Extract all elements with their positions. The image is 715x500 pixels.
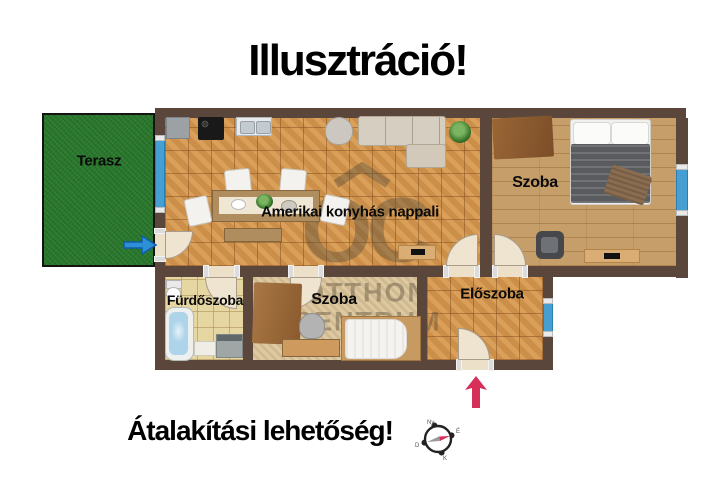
stove-cooktop bbox=[198, 117, 224, 140]
compass-east-letter: K bbox=[443, 456, 447, 462]
bathroom-door-opening bbox=[205, 266, 238, 277]
small-room-chair bbox=[299, 313, 325, 339]
bedroom-door-opening bbox=[494, 266, 526, 277]
tv bbox=[411, 249, 425, 255]
duvet bbox=[345, 319, 407, 359]
bathtub-water bbox=[169, 312, 188, 355]
floorplan-illustration: Illusztráció! Terasz OC OTTHON CENTRUM bbox=[0, 0, 715, 500]
wall-mid-seg3 bbox=[322, 266, 445, 277]
page-title: Illusztráció! bbox=[0, 36, 715, 86]
wall-hall-right-upper bbox=[543, 266, 553, 302]
sofa-chaise bbox=[406, 144, 446, 168]
bedroom-label: Szoba bbox=[512, 174, 558, 192]
wall-hall-right-lower bbox=[543, 333, 553, 370]
tv bbox=[604, 253, 620, 259]
small-room-label: Szoba bbox=[311, 291, 357, 309]
living-armchair bbox=[325, 117, 353, 145]
bedroom-window bbox=[676, 168, 688, 212]
hallway-window bbox=[543, 302, 553, 333]
caption-text: Átalakítási lehetőség! bbox=[110, 415, 410, 447]
dining-bench bbox=[224, 228, 282, 242]
bedroom-wardrobe bbox=[492, 115, 554, 159]
living-door-opening bbox=[445, 266, 478, 277]
compass-north-letter: É bbox=[456, 428, 460, 435]
living-room-label: Amerikai konyhás nappali bbox=[261, 204, 439, 221]
corner-sofa bbox=[358, 116, 446, 146]
wall-right-upper bbox=[676, 118, 688, 168]
entrance-door-opening bbox=[458, 360, 492, 370]
entrance-arrow-icon bbox=[462, 374, 490, 412]
pillow bbox=[611, 122, 649, 145]
double-bed bbox=[570, 119, 651, 205]
wall-living-bedroom bbox=[480, 108, 492, 277]
wall-bath-room bbox=[243, 277, 253, 360]
small-room-bench bbox=[282, 339, 340, 357]
compass-west-letter: Ny bbox=[427, 420, 434, 426]
single-bed bbox=[341, 316, 421, 361]
bedroom-tv-stand bbox=[584, 249, 640, 263]
wall-bottom-left bbox=[155, 360, 458, 370]
blue-arrow-icon bbox=[122, 234, 160, 256]
kitchen-sink bbox=[236, 117, 272, 136]
living-tv-stand bbox=[398, 245, 436, 260]
wall-mid-seg1 bbox=[155, 266, 205, 277]
terrace-window bbox=[155, 139, 165, 209]
table-dishes bbox=[231, 199, 246, 210]
bedroom-armchair bbox=[536, 231, 564, 259]
hallway-label: Előszoba bbox=[460, 286, 523, 303]
terrace-label: Terasz bbox=[77, 153, 122, 170]
bathroom-label: Fürdőszoba bbox=[167, 292, 243, 308]
wall-mid-seg2 bbox=[238, 266, 290, 277]
kitchen-cabinet bbox=[166, 117, 190, 139]
bathtub bbox=[165, 307, 194, 361]
small-room-door-opening bbox=[290, 266, 322, 277]
potted-plant bbox=[449, 121, 471, 143]
compass-south-letter: D bbox=[415, 443, 420, 449]
washing-machine bbox=[216, 334, 243, 358]
bath-mat bbox=[194, 341, 216, 356]
small-room-wardrobe bbox=[252, 282, 302, 345]
compass-icon: É K D Ny bbox=[413, 418, 463, 462]
pillow bbox=[573, 122, 611, 145]
